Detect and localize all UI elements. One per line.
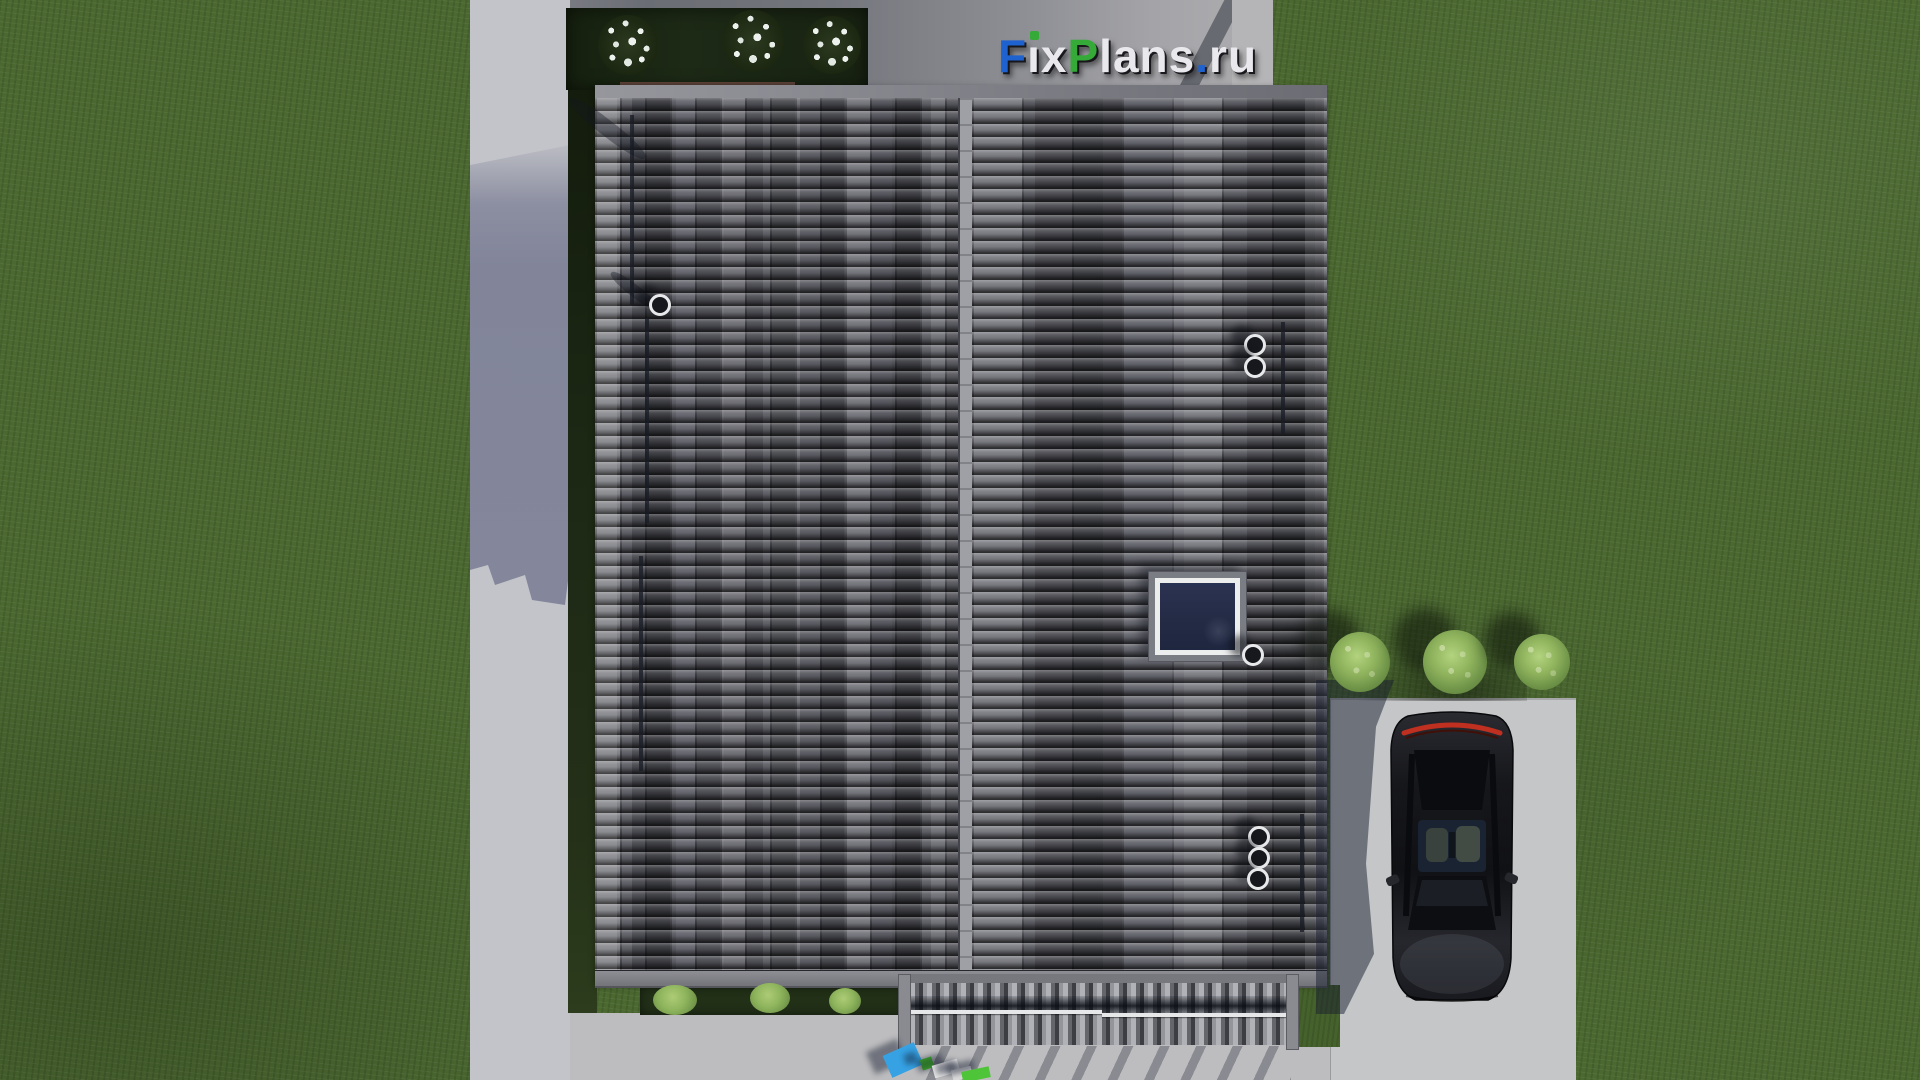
car-seat-left bbox=[1426, 828, 1448, 862]
car-hood-sheen bbox=[1400, 934, 1504, 994]
house-shadow-on-path bbox=[470, 135, 570, 635]
car-seat-right bbox=[1456, 826, 1480, 862]
rear-garden-bed bbox=[640, 985, 905, 1015]
roof-left-edge-highlight bbox=[595, 98, 617, 970]
watermark-letter: u bbox=[1228, 30, 1257, 82]
house-roof bbox=[595, 85, 1327, 985]
watermark-letter: s bbox=[1169, 30, 1196, 82]
hedge-strip-left-of-house bbox=[568, 88, 597, 1013]
car-rear-window bbox=[1414, 750, 1490, 810]
pergola-right-cap bbox=[1286, 974, 1299, 1050]
watermark-letter: r bbox=[1209, 30, 1228, 82]
skylight-glass bbox=[1160, 583, 1235, 650]
pergola-left-cap bbox=[898, 974, 911, 1050]
watermark-letter: x bbox=[1041, 30, 1068, 82]
watermark-letter-dot bbox=[1030, 31, 1039, 40]
parked-car bbox=[1386, 706, 1518, 1010]
watermark-letter: l bbox=[1099, 30, 1113, 82]
pergola-rail-right bbox=[1102, 1013, 1290, 1017]
watermark-letter: . bbox=[1195, 30, 1209, 82]
fixplans-watermark-logo: FıxPlans.ru bbox=[998, 30, 1257, 82]
left-walkway bbox=[470, 0, 570, 1080]
watermark-letter: P bbox=[1067, 30, 1099, 82]
roof-tiles-left-slope bbox=[595, 98, 958, 970]
pergola-slat-shadows bbox=[905, 1046, 1291, 1080]
watermark-letter: a bbox=[1113, 30, 1140, 82]
watermark-letter: F bbox=[998, 30, 1027, 82]
pergola-canopy bbox=[898, 974, 1298, 1048]
watermark-letter: n bbox=[1140, 30, 1169, 82]
top-flower-bed bbox=[566, 8, 868, 90]
pergola-rail-left bbox=[906, 1010, 1102, 1014]
roof-top-fascia bbox=[595, 85, 1327, 99]
site-render: FıxPlans.ru bbox=[0, 0, 1920, 1080]
roof-tiles-right-slope bbox=[972, 98, 1327, 970]
watermark-letter: ı bbox=[1027, 30, 1041, 82]
skylight-window bbox=[1148, 571, 1247, 662]
